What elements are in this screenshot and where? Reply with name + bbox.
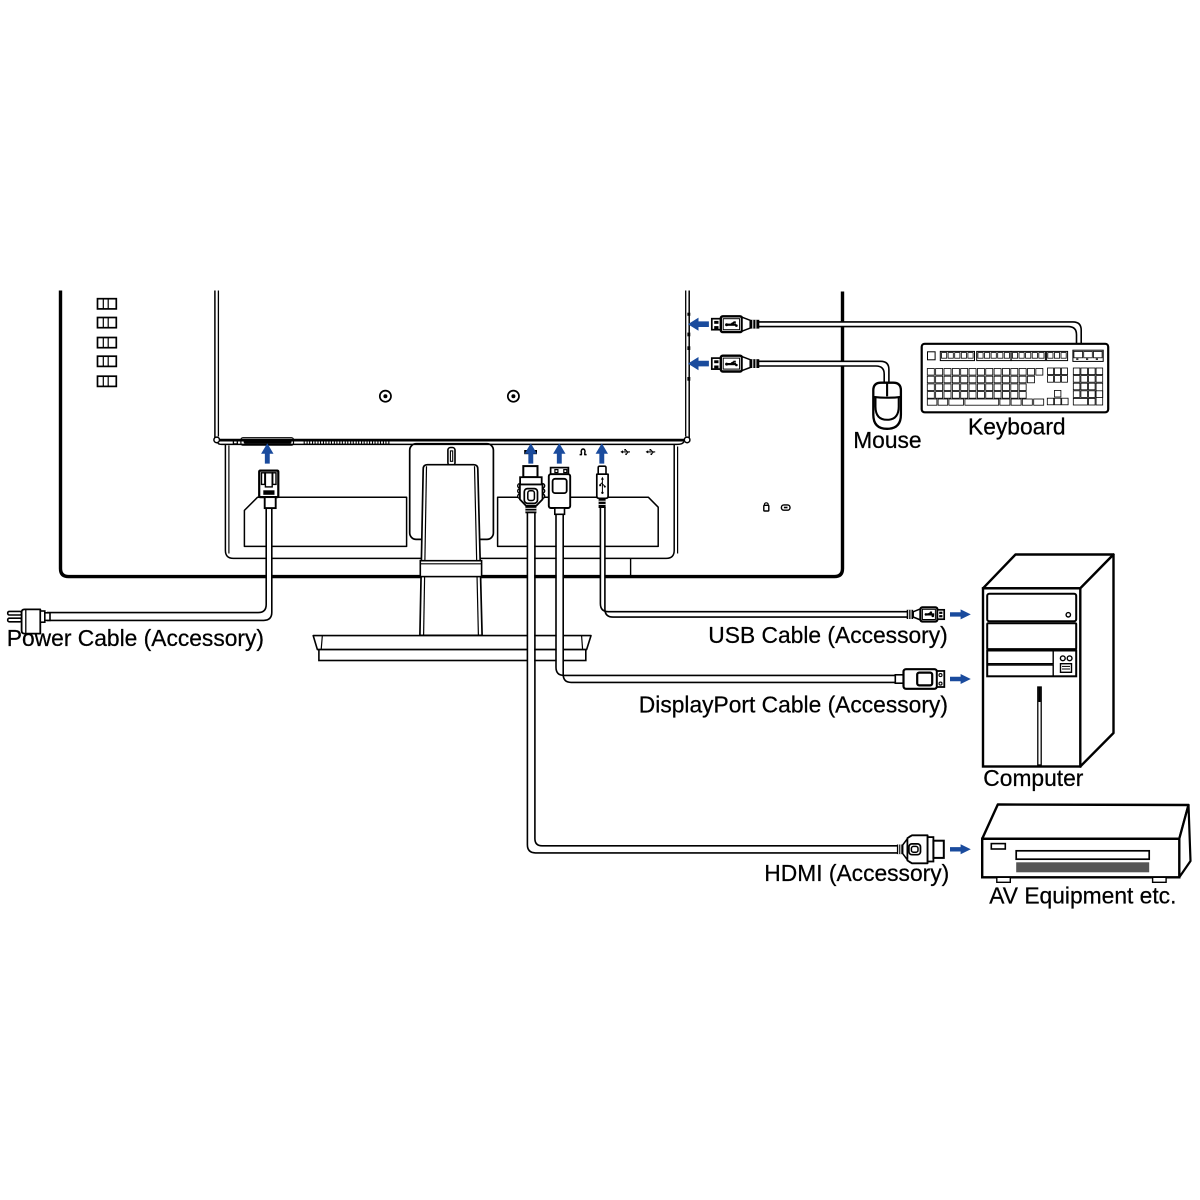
svg-text:Keyboard: Keyboard (968, 414, 1066, 440)
svg-text:HDMI (Accessory): HDMI (Accessory) (764, 860, 949, 886)
svg-text:USB Cable (Accessory): USB Cable (Accessory) (708, 622, 947, 648)
svg-text:DisplayPort Cable (Accessory): DisplayPort Cable (Accessory) (639, 692, 948, 718)
svg-text:Computer: Computer (983, 765, 1084, 791)
svg-text:Power Cable (Accessory): Power Cable (Accessory) (7, 625, 264, 651)
svg-text:Mouse: Mouse (853, 427, 921, 453)
svg-text:AV Equipment etc.: AV Equipment etc. (989, 883, 1176, 909)
